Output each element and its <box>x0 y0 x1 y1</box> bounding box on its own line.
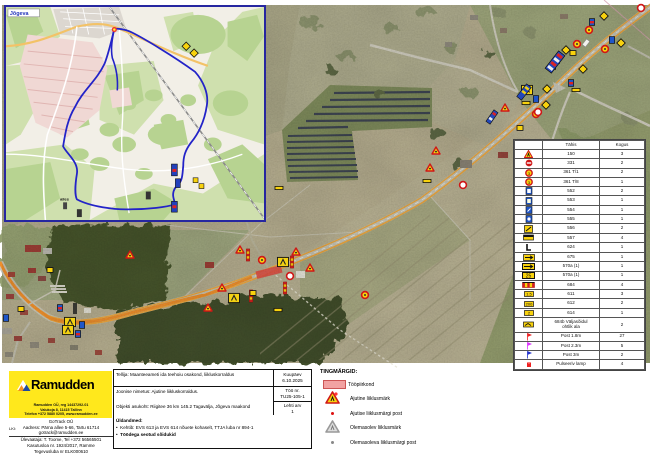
svg-text:1.5: 1.5 <box>526 292 532 297</box>
svg-text:Jõgeva: Jõgeva <box>10 11 30 17</box>
svg-text:alles: alles <box>60 196 70 201</box>
svg-text:25: 25 <box>526 274 532 280</box>
svg-text:200: 200 <box>525 301 532 306</box>
